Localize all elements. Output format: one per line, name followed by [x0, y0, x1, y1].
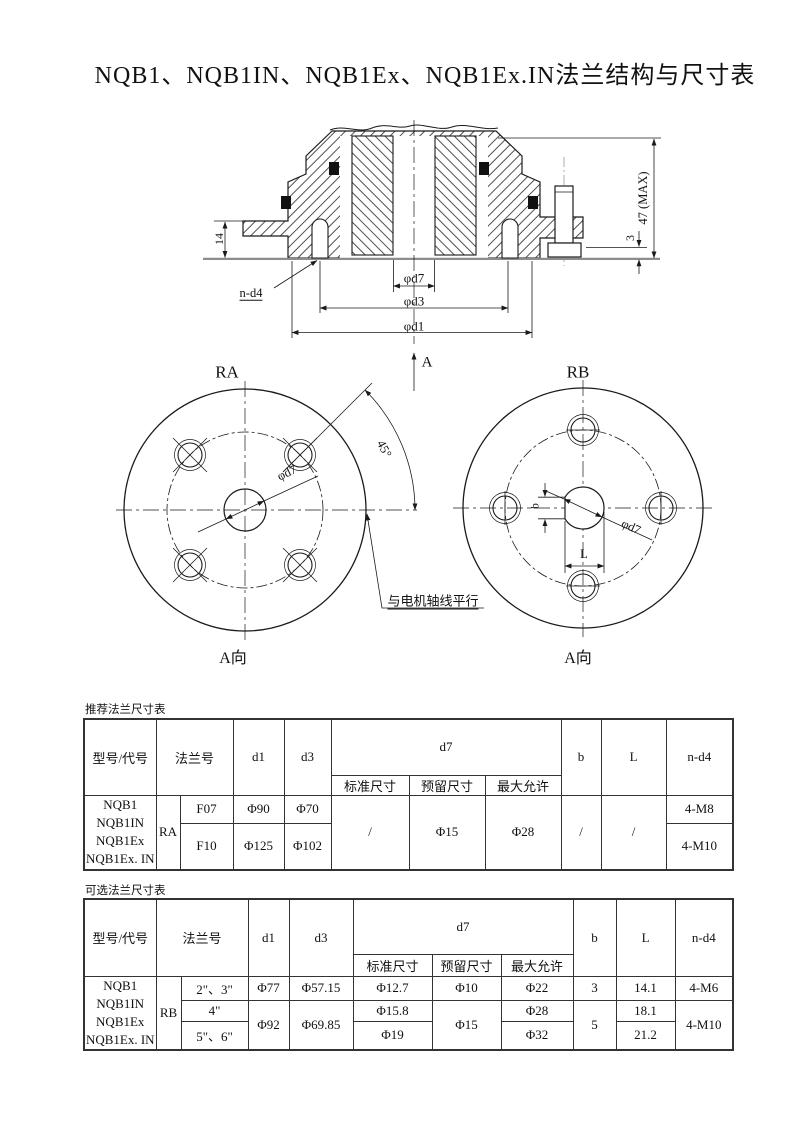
model-line: NQB1Ex — [85, 1013, 156, 1031]
model-line: NQB1IN — [85, 814, 156, 832]
bolt-hole-right — [502, 219, 518, 258]
cell-nd4: 4-M8 — [666, 795, 733, 823]
stud-nut — [548, 243, 581, 257]
cell-l: 18.1 — [616, 1000, 675, 1021]
col-header-nd4: n-d4 — [666, 719, 733, 795]
col-header-flange: 法兰号 — [156, 899, 248, 976]
rb-view-title: RB — [567, 364, 590, 381]
ra-direction-label: A向 — [219, 651, 247, 667]
seal-lower-left — [281, 196, 291, 209]
cell-b: 5 — [573, 1000, 616, 1050]
col-header-standard: 标准尺寸 — [331, 775, 409, 795]
recommended-table-caption: 推荐法兰尺寸表 — [85, 701, 166, 717]
table-row: NQB1 NQB1IN NQB1Ex NQB1Ex. IN RB 2"、3" Φ… — [84, 976, 733, 1000]
dim-label-3: 3 — [624, 235, 636, 241]
col-header-d7: d7 — [331, 719, 561, 775]
cell-std: Φ15.8 — [353, 1000, 432, 1021]
dim-label-47-max: 47 (MAX) — [637, 171, 650, 224]
cell-max: Φ32 — [501, 1021, 573, 1050]
cell-d1: Φ92 — [248, 1000, 289, 1050]
cell-reserved: Φ15 — [432, 1000, 501, 1050]
dim-label-d1: φd1 — [404, 320, 425, 333]
cell-flange-no: F07 — [180, 795, 233, 823]
cell-max: Φ28 — [501, 1000, 573, 1021]
cell-flange-no: 4" — [181, 1000, 248, 1021]
ra-view-title: RA — [215, 364, 239, 381]
rb-flange-view — [450, 353, 790, 658]
cell-d3: Φ70 — [284, 795, 331, 823]
seal-upper-left — [329, 162, 339, 175]
ra-axis-note: 与电机轴线平行 — [387, 595, 478, 608]
cell-d3: Φ102 — [284, 823, 331, 870]
stud-shaft — [555, 186, 573, 243]
model-line: NQB1 — [85, 977, 156, 995]
col-header-l: L — [601, 719, 666, 795]
cell-d1: Φ125 — [233, 823, 284, 870]
rb-key-length-label: L — [580, 548, 588, 561]
rb-key-width-label: b — [530, 503, 542, 509]
cell-std: Φ19 — [353, 1021, 432, 1050]
col-header-model: 型号/代号 — [84, 899, 156, 976]
col-header-d3: d3 — [289, 899, 353, 976]
cell-d3: Φ69.85 — [289, 1000, 353, 1050]
cell-reserved: Φ10 — [432, 976, 501, 1000]
rb-center-bore-keyway — [565, 487, 604, 529]
cell-reserved: Φ15 — [409, 795, 485, 870]
cell-flange-group: RB — [156, 976, 181, 1050]
dim-label-d7: φd7 — [404, 272, 425, 285]
sleeve-right-section — [435, 136, 476, 255]
cell-l: 21.2 — [616, 1021, 675, 1050]
cell-l: / — [601, 795, 666, 870]
cell-flange-group: RA — [156, 795, 180, 870]
col-header-b: b — [561, 719, 601, 795]
col-header-d7: d7 — [353, 899, 573, 954]
cell-d1: Φ90 — [233, 795, 284, 823]
cell-models: NQB1 NQB1IN NQB1Ex NQB1Ex. IN — [84, 795, 156, 870]
col-header-reserved: 预留尺寸 — [409, 775, 485, 795]
bolt-pattern-label: n-d4 — [240, 287, 263, 300]
page-title: NQB1、NQB1IN、NQB1Ex、NQB1Ex.IN法兰结构与尺寸表 — [50, 55, 800, 90]
recommended-flange-table: 型号/代号 法兰号 d1 d3 d7 b L n-d4 标准尺寸 预留尺寸 最大… — [83, 718, 734, 871]
seal-upper-right — [479, 162, 489, 175]
cell-flange-no: 5"、6" — [181, 1021, 248, 1050]
cell-std: / — [331, 795, 409, 870]
view-arrow-label: A — [422, 356, 433, 371]
cell-d1: Φ77 — [248, 976, 289, 1000]
col-header-b: b — [573, 899, 616, 976]
ra-annotations — [198, 383, 484, 608]
model-line: NQB1 — [85, 796, 156, 814]
col-header-flange: 法兰号 — [156, 719, 233, 795]
seal-lower-right — [528, 196, 538, 209]
table-row: NQB1 NQB1IN NQB1Ex NQB1Ex. IN RA F07 Φ90… — [84, 795, 733, 823]
cell-max: Φ28 — [485, 795, 561, 870]
table-row: 5"、6" Φ19 Φ32 21.2 — [84, 1021, 733, 1050]
cell-b: 3 — [573, 976, 616, 1000]
table-row: 4" Φ92 Φ69.85 Φ15.8 Φ15 Φ28 5 18.1 4-M10 — [84, 1000, 733, 1021]
col-header-d1: d1 — [233, 719, 284, 795]
col-header-reserved: 预留尺寸 — [432, 954, 501, 976]
cell-flange-no: F10 — [180, 823, 233, 870]
cell-l: 14.1 — [616, 976, 675, 1000]
model-line: NQB1Ex. IN — [85, 1031, 156, 1049]
col-header-d1: d1 — [248, 899, 289, 976]
cell-flange-no: 2"、3" — [181, 976, 248, 1000]
model-line: NQB1Ex. IN — [85, 850, 156, 868]
col-header-max: 最大允许 — [501, 954, 573, 976]
col-header-l: L — [616, 899, 675, 976]
dim-label-d3: φd3 — [404, 295, 425, 308]
col-header-max: 最大允许 — [485, 775, 561, 795]
col-header-model: 型号/代号 — [84, 719, 156, 795]
spec-sheet-page: NQB1、NQB1IN、NQB1Ex、NQB1Ex.IN法兰结构与尺寸表 — [0, 0, 800, 1132]
cell-b: / — [561, 795, 601, 870]
cell-nd4: 4-M6 — [675, 976, 733, 1000]
col-header-nd4: n-d4 — [675, 899, 733, 976]
model-line: NQB1IN — [85, 995, 156, 1013]
optional-flange-table: 型号/代号 法兰号 d1 d3 d7 b L n-d4 标准尺寸 预留尺寸 最大… — [83, 898, 734, 1051]
cell-nd4: 4-M10 — [675, 1000, 733, 1050]
ra-flange-view — [100, 353, 440, 658]
cell-max: Φ22 — [501, 976, 573, 1000]
bolt-hole-left — [312, 219, 328, 258]
cell-models: NQB1 NQB1IN NQB1Ex NQB1Ex. IN — [84, 976, 156, 1050]
optional-table-caption: 可选法兰尺寸表 — [85, 882, 166, 898]
dim-label-14: 14 — [213, 233, 225, 245]
col-header-standard: 标准尺寸 — [353, 954, 432, 976]
cell-nd4: 4-M10 — [666, 823, 733, 870]
sleeve-left-section — [352, 136, 393, 255]
cell-std: Φ12.7 — [353, 976, 432, 1000]
model-line: NQB1Ex — [85, 832, 156, 850]
rb-direction-label: A向 — [564, 651, 592, 667]
cell-d3: Φ57.15 — [289, 976, 353, 1000]
col-header-d3: d3 — [284, 719, 331, 795]
